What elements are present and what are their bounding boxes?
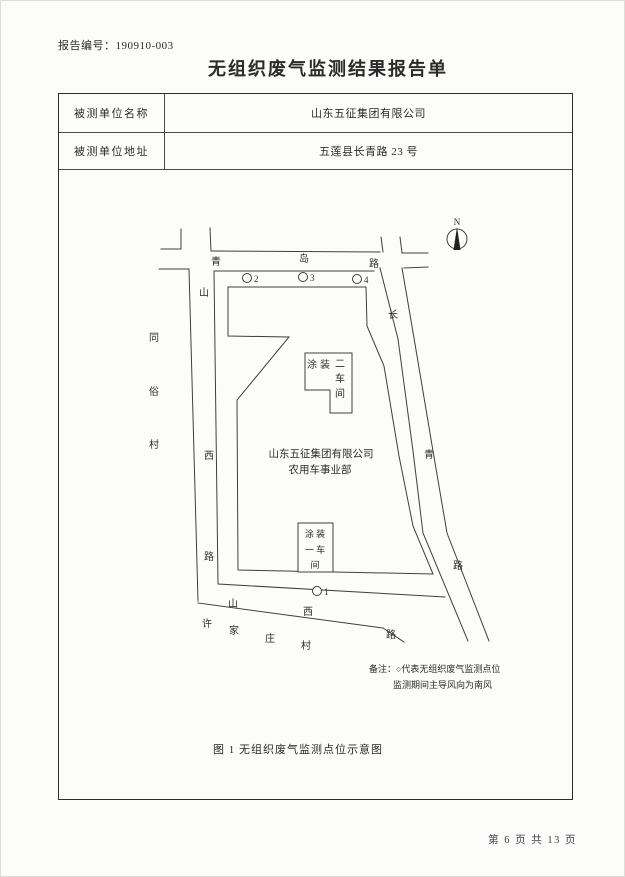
point-label: 2 (254, 274, 259, 284)
road-label: 青 (211, 255, 221, 268)
point-label: 4 (364, 275, 369, 285)
village-tongsu: 同 俗 村 (149, 332, 159, 451)
company-name-line1: 山东五征集团有限公司 (269, 447, 374, 460)
road-label: 青 (424, 448, 434, 461)
village-label: 家 (229, 624, 239, 637)
monitoring-point-3: 3 (299, 273, 316, 284)
road-label: 西 (303, 607, 313, 618)
road-label: 路 (369, 257, 379, 270)
village-xujiazhuang: 许 家 庄 村 (202, 618, 311, 652)
road-label: 山 (199, 287, 209, 299)
building-label: 间 (335, 387, 345, 400)
table-row: 被测单位地址 五莲县长青路 23 号 (59, 133, 572, 170)
building-label: 涂 装 (305, 528, 325, 539)
building-label: 涂装 (307, 358, 333, 371)
building-label: 一 车 (305, 544, 325, 555)
road-label: 路 (204, 550, 214, 563)
road-label: 山 (228, 598, 238, 610)
tested-unit-address-value: 五莲县长青路 23 号 (165, 133, 572, 169)
north-needle (454, 227, 461, 250)
north-arrow-icon: N (447, 217, 467, 250)
building-label: 二 (335, 359, 345, 370)
village-label: 同 (149, 332, 159, 344)
table-row: 被测单位名称 山东五征集团有限公司 (59, 94, 572, 133)
tested-unit-address-label: 被测单位地址 (59, 133, 165, 169)
report-page: 报告编号：190910-003 无组织废气监测结果报告单 被测单位名称 山东五征… (0, 0, 625, 877)
monitoring-point-4: 4 (353, 275, 370, 286)
village-label: 村 (149, 438, 159, 451)
site-map-figure: 青 岛 路 山 西 路 山 西 路 长 青 路 同 (58, 167, 573, 800)
map-remark-line2: 监测期间主导风向为南风 (393, 679, 492, 690)
figure-caption: 图 1 无组织废气监测点位示意图 (213, 742, 383, 756)
page-number: 第 6 页 共 13 页 (488, 832, 577, 847)
village-label: 许 (202, 618, 212, 630)
page-title: 无组织废气监测结果报告单 (208, 55, 448, 81)
building-paint-workshop-1: 涂 装 一 车 间 (298, 523, 333, 572)
building-label: 车 (335, 372, 345, 385)
building-label: 间 (310, 559, 319, 570)
point-label: 1 (324, 587, 329, 597)
building-paint-workshop-2: 涂装 二 车 间 (305, 353, 352, 413)
north-label: N (454, 217, 461, 227)
road-label: 路 (453, 559, 463, 572)
road-shanxi-west: 山 西 路 (189, 269, 218, 601)
report-number: 报告编号：190910-003 (58, 37, 174, 53)
monitoring-point-1: 1 (313, 587, 329, 598)
road-qingdao: 青 岛 路 (159, 228, 428, 271)
road-label: 西 (204, 451, 214, 462)
road-label: 路 (386, 628, 396, 641)
road-changqing: 长 青 路 (380, 268, 489, 641)
point-label: 3 (310, 273, 315, 283)
tested-unit-name-label: 被测单位名称 (59, 94, 165, 132)
village-label: 庄 (265, 632, 275, 645)
map-remark-line1: 备注：○代表无组织废气监测点位 (369, 663, 500, 674)
road-label: 长 (388, 309, 398, 321)
monitoring-point-2: 2 (243, 274, 259, 285)
village-label: 俗 (149, 386, 159, 398)
road-label: 岛 (299, 252, 309, 265)
company-name-line2: 农用车事业部 (289, 463, 352, 476)
village-label: 村 (301, 639, 311, 652)
tested-unit-name-value: 山东五征集团有限公司 (165, 94, 572, 132)
